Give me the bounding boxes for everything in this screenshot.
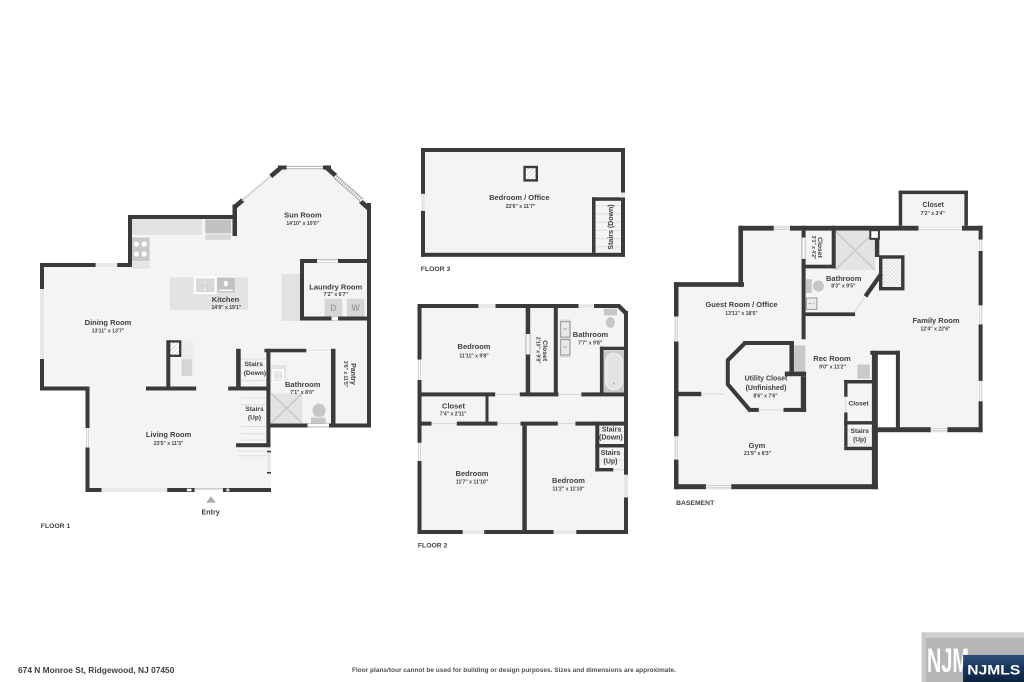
svg-text:2'10" x 9'8": 2'10" x 9'8" — [535, 337, 541, 364]
svg-text:BASEMENT: BASEMENT — [676, 500, 715, 507]
svg-text:14'10" x 10'0": 14'10" x 10'0" — [286, 221, 319, 227]
svg-text:7'2" x 3'4": 7'2" x 3'4" — [921, 211, 946, 217]
svg-text:Bedroom: Bedroom — [458, 342, 491, 351]
svg-text:13'11" x 13'7": 13'11" x 13'7" — [92, 328, 125, 334]
svg-text:Bedroom: Bedroom — [456, 469, 489, 478]
svg-text:Stairs (Down): Stairs (Down) — [608, 204, 615, 249]
svg-text:Stairs: Stairs — [851, 428, 870, 435]
svg-text:Bedroom / Office: Bedroom / Office — [489, 193, 549, 202]
svg-text:Pantry: Pantry — [349, 363, 356, 385]
svg-text:(Unfinished): (Unfinished) — [746, 385, 787, 392]
svg-text:Bathroom: Bathroom — [285, 380, 321, 389]
svg-text:Dining Room: Dining Room — [85, 318, 132, 327]
svg-text:Stairs: Stairs — [245, 406, 264, 413]
svg-text:Closet: Closet — [541, 340, 548, 362]
svg-text:Floor plans/tour cannot be use: Floor plans/tour cannot be used for buil… — [352, 667, 676, 674]
svg-text:7'7" x 9'8": 7'7" x 9'8" — [578, 340, 603, 346]
svg-text:Bathroom: Bathroom — [573, 330, 609, 339]
svg-text:Stairs: Stairs — [602, 426, 622, 433]
svg-text:Closet: Closet — [816, 237, 823, 259]
svg-text:(Up): (Up) — [604, 458, 618, 465]
svg-text:Entry: Entry — [202, 508, 220, 516]
svg-text:11'7" x 11'10": 11'7" x 11'10" — [456, 479, 489, 485]
svg-text:FLOOR 2: FLOOR 2 — [418, 543, 448, 550]
svg-text:W: W — [352, 303, 361, 313]
svg-text:Kitchen: Kitchen — [212, 295, 240, 304]
svg-text:Closet: Closet — [922, 202, 944, 209]
svg-text:Rec Room: Rec Room — [813, 354, 851, 363]
svg-text:22'6" x 11'7": 22'6" x 11'7" — [506, 204, 536, 210]
svg-text:13'11" x 18'5": 13'11" x 18'5" — [725, 311, 758, 317]
svg-text:7'2" x 6'7": 7'2" x 6'7" — [324, 292, 349, 298]
svg-text:FLOOR 3: FLOOR 3 — [421, 266, 451, 273]
svg-text:Stairs: Stairs — [601, 450, 621, 457]
svg-text:Guest Room / Office: Guest Room / Office — [705, 300, 777, 309]
svg-text:Closet: Closet — [442, 401, 465, 410]
svg-text:Closet: Closet — [849, 400, 870, 407]
svg-text:7'1" x 8'0": 7'1" x 8'0" — [290, 390, 315, 396]
svg-text:Family Room: Family Room — [912, 316, 959, 325]
svg-text:Bathroom: Bathroom — [826, 274, 862, 283]
svg-text:Gym: Gym — [749, 441, 766, 450]
svg-text:Bedroom: Bedroom — [552, 476, 585, 485]
svg-text:Stairs: Stairs — [245, 361, 264, 368]
svg-text:Utility Closet: Utility Closet — [745, 375, 788, 382]
svg-text:Living Room: Living Room — [146, 430, 192, 439]
svg-text:3'1" x 4'2": 3'1" x 4'2" — [810, 236, 816, 260]
svg-text:(Down): (Down) — [244, 370, 266, 377]
svg-text:14'9" x 19'1": 14'9" x 19'1" — [211, 305, 241, 311]
svg-text:FLOOR 1: FLOOR 1 — [41, 523, 71, 530]
svg-text:7'4" x 2'11": 7'4" x 2'11" — [440, 411, 467, 417]
svg-text:(Down): (Down) — [599, 435, 623, 442]
svg-text:Laundry Room: Laundry Room — [309, 282, 362, 291]
svg-text:9'0" x 11'2": 9'0" x 11'2" — [819, 365, 846, 371]
svg-text:(Up): (Up) — [853, 436, 866, 443]
svg-text:23'5" x 11'3": 23'5" x 11'3" — [154, 441, 184, 447]
svg-text:8'3" x 9'5": 8'3" x 9'5" — [831, 284, 856, 290]
svg-text:NJM: NJM — [927, 642, 969, 680]
svg-text:21'9" x 8'3": 21'9" x 8'3" — [744, 451, 772, 457]
svg-text:D: D — [330, 303, 336, 313]
svg-text:11'11" x 9'8": 11'11" x 9'8" — [459, 353, 489, 359]
svg-text:12'4" x 22'6": 12'4" x 22'6" — [921, 326, 951, 332]
svg-text:11'2" x 11'10": 11'2" x 11'10" — [552, 486, 585, 492]
svg-text:Sun Room: Sun Room — [284, 211, 322, 220]
svg-text:3'6" x 11'5": 3'6" x 11'5" — [342, 361, 348, 388]
svg-text:(Up): (Up) — [248, 414, 261, 421]
svg-text:674 N Monroe St, Ridgewood, NJ: 674 N Monroe St, Ridgewood, NJ 07450 — [18, 665, 175, 675]
svg-text:NJMLS: NJMLS — [967, 662, 1020, 677]
svg-text:8'6" x 7'6": 8'6" x 7'6" — [753, 393, 778, 399]
